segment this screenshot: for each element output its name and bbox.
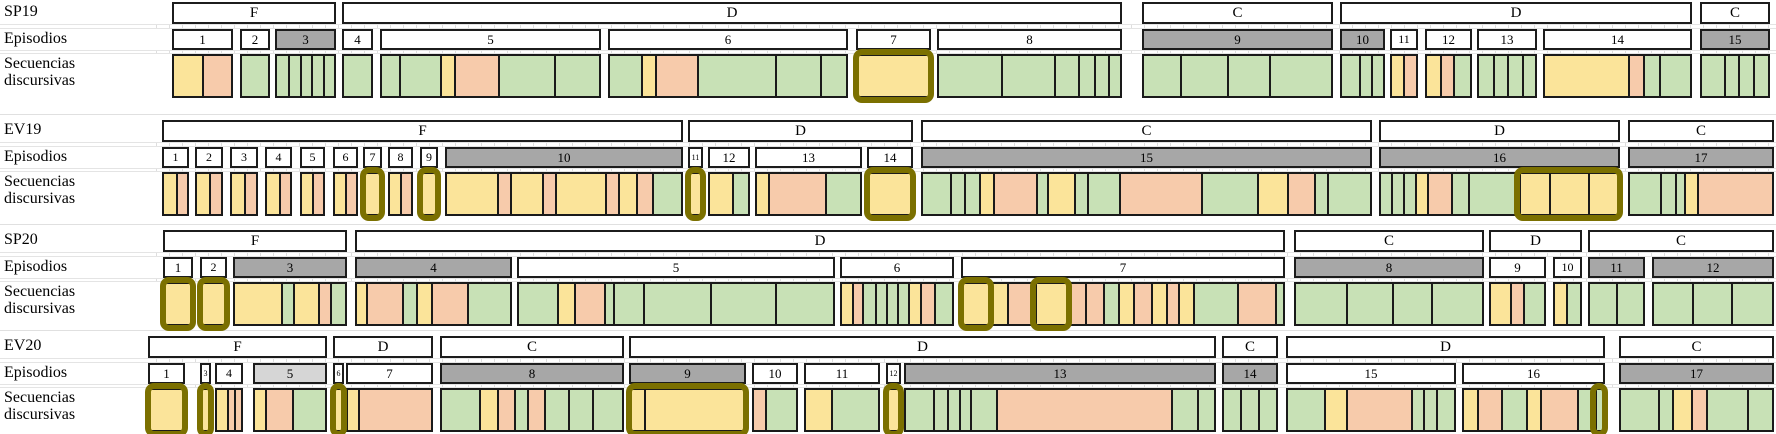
- episode-box-9: 9: [1489, 257, 1546, 278]
- sequence-cell-green: [1392, 284, 1432, 324]
- sequence-cell-yellow: [757, 174, 768, 214]
- sequence-cell-yellow: [335, 390, 342, 430]
- sequence-cell-green: [242, 56, 268, 96]
- sequence-cell-green: [568, 390, 592, 430]
- sequence-cell-green: [467, 284, 510, 324]
- sequence-cell-green: [1566, 284, 1580, 324]
- sequence-cell-green: [1094, 56, 1108, 96]
- sequence-cell-orange: [244, 174, 256, 214]
- sequence-cell-yellow: [842, 284, 852, 324]
- episode-box-1: 1: [162, 147, 189, 168]
- sequence-cell-green: [875, 284, 887, 324]
- sequence-strip-ep12: [886, 388, 901, 432]
- sequence-cell-yellow: [1672, 390, 1691, 430]
- highlighted-cell-group: [165, 284, 191, 324]
- episode-box-5: 5: [300, 147, 325, 168]
- sequence-strip-ep13: [1477, 54, 1537, 98]
- highlighted-cell-group: [202, 284, 225, 324]
- sequence-cell-green: [1193, 284, 1237, 324]
- episode-box-4: 4: [355, 257, 512, 278]
- sequence-cell-orange: [227, 390, 234, 430]
- sequence-cell-green: [1423, 390, 1436, 430]
- sequence-cell-green: [281, 284, 293, 324]
- sequence-cell-yellow: [1427, 56, 1440, 96]
- phase-box-d: D: [1340, 2, 1692, 24]
- sequence-strip-ep6: [333, 388, 344, 432]
- episode-box-6: 6: [333, 147, 358, 168]
- sequence-strip-ep2: [195, 172, 223, 216]
- episode-box-10: 10: [1340, 29, 1385, 50]
- sequence-strip-ep8: [388, 172, 413, 216]
- sequence-strip-ep1: [172, 54, 233, 98]
- sequence-cell-green: [950, 174, 963, 214]
- sequence-cell-green: [1036, 174, 1047, 214]
- episode-box-2: 2: [240, 29, 270, 50]
- sequence-cell-green: [1436, 390, 1454, 430]
- sequence-cell-green: [1296, 284, 1346, 324]
- episode-box-4: 4: [215, 363, 243, 384]
- episode-box-16: 16: [1379, 147, 1620, 168]
- sequence-cell-green: [1054, 56, 1078, 96]
- highlighted-cell-group: [963, 284, 989, 324]
- phase-box-c: C: [1700, 2, 1770, 24]
- highlighted-cell-group: [869, 174, 911, 214]
- sequence-cell-yellow: [858, 56, 929, 96]
- episode-box-3: 3: [275, 29, 336, 50]
- sequence-strip-ep6: [608, 54, 848, 98]
- sequence-cell-green: [519, 284, 557, 324]
- sequence-strip-ep2: [240, 54, 270, 98]
- block-sp20: SP20EpisodiosSecuencias discursivasFDCDC…: [0, 230, 1776, 326]
- sequence-cell-orange: [1237, 284, 1275, 324]
- phase-box-d: D: [355, 230, 1285, 252]
- sequence-cell-orange: [1119, 174, 1201, 214]
- episode-box-14: 14: [1222, 363, 1278, 384]
- sequence-cell-orange: [852, 284, 863, 324]
- sequence-cell-green: [1240, 390, 1258, 430]
- episode-box-15: 15: [1286, 363, 1456, 384]
- highlighted-cell-group: [1595, 390, 1603, 430]
- sequence-cell-yellow: [710, 174, 732, 214]
- sequence-cell-orange: [1540, 390, 1577, 430]
- sequence-cell-green: [1738, 56, 1753, 96]
- sequence-cell-orange: [497, 174, 510, 214]
- sequence-cell-yellow: [479, 390, 498, 430]
- sequence-cell-yellow: [267, 174, 279, 214]
- sequence-cell-orange: [1133, 284, 1151, 324]
- sequence-cell-orange: [234, 390, 241, 430]
- episode-box-17: 17: [1619, 363, 1774, 384]
- block-label: EV20: [4, 338, 41, 355]
- episode-box-8: 8: [1294, 257, 1484, 278]
- sequence-cell-green: [939, 56, 1001, 96]
- phase-box-f: F: [162, 120, 683, 142]
- sequence-strip-ep6: [840, 282, 954, 326]
- episode-box-10: 10: [1553, 257, 1582, 278]
- sequence-strip-ep15: [921, 172, 1372, 216]
- sequence-cell-green: [897, 284, 908, 324]
- sequence-cell-orange: [993, 174, 1036, 214]
- sequence-cell-green: [1269, 56, 1331, 96]
- sequence-strip-ep9: [1142, 54, 1333, 98]
- sequence-cell-yellow: [1257, 174, 1286, 214]
- sequence-cell-green: [610, 56, 641, 96]
- sequence-cell-green: [442, 390, 479, 430]
- phase-box-f: F: [172, 2, 336, 24]
- sequence-strip-ep17: [1628, 172, 1774, 216]
- sequence-cell-green: [277, 56, 288, 96]
- episode-box-9: 9: [420, 147, 438, 168]
- episode-box-11: 11: [1588, 257, 1645, 278]
- sequence-cell-green: [1275, 284, 1283, 324]
- sequence-cell-yellow: [555, 174, 605, 214]
- sequence-cell-orange: [279, 174, 290, 214]
- sequence-cell-green: [1577, 390, 1596, 430]
- sequence-cell-orange: [202, 56, 232, 96]
- sequence-cell-green: [1180, 56, 1227, 96]
- phase-box-c: C: [1588, 230, 1774, 252]
- sequence-cell-green: [1381, 174, 1391, 214]
- sequence-cell-green: [402, 284, 416, 324]
- phase-box-c: C: [1294, 230, 1484, 252]
- sequence-cell-yellow: [1491, 284, 1510, 324]
- sequence-cell-yellow: [510, 174, 542, 214]
- sequence-strip-ep3: [275, 54, 336, 98]
- block-ev19: EV19EpisodiosSecuencias discursivasFDCDC…: [0, 120, 1776, 216]
- sequence-cell-yellow: [1324, 390, 1346, 430]
- episode-box-7: 7: [961, 257, 1285, 278]
- sequence-cell-orange: [209, 174, 221, 214]
- episode-box-12: 12: [708, 147, 750, 168]
- sequence-strip-ep5: [517, 282, 835, 326]
- sequence-cell-green: [1258, 390, 1276, 430]
- sequence-cell-green: [1724, 56, 1739, 96]
- sequence-cell-orange: [1067, 284, 1085, 324]
- sequence-cell-orange: [1440, 56, 1453, 96]
- sequence-cell-yellow: [1519, 174, 1549, 214]
- phase-box-d: D: [688, 120, 913, 142]
- sequence-strip-ep1: [162, 172, 189, 216]
- sequence-cell-orange: [1007, 284, 1035, 324]
- episode-box-7: 7: [363, 147, 382, 168]
- sequence-strip-ep7: [961, 282, 1285, 326]
- sequence-cell-orange: [1691, 390, 1706, 430]
- sequence-strip-ep4: [355, 282, 512, 326]
- row-label-episodios: Episodios: [4, 31, 67, 48]
- episode-box-12: 12: [1425, 29, 1472, 50]
- discourse-sequences-chart: SP19EpisodiosSecuencias discursivasFDCDC…: [0, 0, 1776, 434]
- sequence-cell-green: [1371, 56, 1383, 96]
- sequence-cell-yellow: [1151, 284, 1166, 324]
- episode-box-7: 7: [346, 363, 433, 384]
- sequence-strip-ep11: [688, 172, 703, 216]
- sequence-strip-ep12: [708, 172, 750, 216]
- episode-box-13: 13: [904, 363, 1216, 384]
- phase-box-d: D: [629, 336, 1216, 358]
- sequence-cell-green: [934, 284, 952, 324]
- sequence-cell-yellow: [1526, 390, 1540, 430]
- sequence-cell-yellow: [1415, 174, 1427, 214]
- row-label-episodios: Episodios: [4, 365, 67, 382]
- sequence-strip-ep5: [253, 388, 327, 432]
- phase-box-d: D: [342, 2, 1122, 24]
- sequence-cell-green: [1108, 56, 1120, 96]
- sequence-cell-green: [344, 56, 371, 96]
- sequence-cell-yellow: [232, 174, 244, 214]
- sequence-cell-orange: [527, 390, 544, 430]
- phase-box-f: F: [163, 230, 347, 252]
- highlighted-cell-group: [690, 174, 701, 214]
- sequence-cell-green: [820, 56, 846, 96]
- block-label: EV19: [4, 122, 41, 139]
- sequence-cell-green: [498, 56, 554, 96]
- sequence-cell-green: [1479, 56, 1493, 96]
- episode-box-12: 12: [886, 363, 901, 384]
- episode-box-8: 8: [388, 147, 413, 168]
- row-gridline: [0, 224, 1776, 225]
- sequence-cell-yellow: [335, 174, 345, 214]
- sequence-cell-green: [970, 390, 996, 430]
- sequence-strip-ep11: [1390, 54, 1418, 98]
- highlighted-cell-group: [335, 390, 342, 430]
- sequence-cell-green: [964, 174, 980, 214]
- phase-box-c: C: [440, 336, 624, 358]
- sequence-cell-green: [1403, 174, 1415, 214]
- sequence-cell-orange: [358, 390, 431, 430]
- sequence-cell-yellow: [557, 284, 575, 324]
- sequence-cell-yellow: [869, 174, 911, 214]
- episode-box-5: 5: [380, 29, 601, 50]
- sequence-cell-yellow: [255, 390, 265, 430]
- sequence-cell-yellow: [989, 284, 1007, 324]
- sequence-cell-green: [1453, 56, 1470, 96]
- episode-box-10: 10: [445, 147, 683, 168]
- sequence-cell-yellow: [963, 284, 989, 324]
- phase-box-c: C: [1222, 336, 1278, 358]
- row-gridline: [0, 114, 1776, 115]
- block-label: SP20: [4, 232, 38, 249]
- sequence-strip-ep4: [215, 388, 243, 432]
- sequence-cell-green: [292, 390, 325, 430]
- episode-box-1: 1: [163, 257, 193, 278]
- sequence-cell-orange: [1166, 284, 1178, 324]
- sequence-cell-green: [399, 56, 440, 96]
- sequence-cell-green: [862, 284, 875, 324]
- episode-box-17: 17: [1628, 147, 1774, 168]
- episode-box-15: 15: [1700, 29, 1770, 50]
- sequence-cell-yellow: [690, 174, 701, 214]
- sequence-cell-green: [1451, 174, 1468, 214]
- sequence-cell-green: [1074, 174, 1087, 214]
- episode-box-8: 8: [937, 29, 1122, 50]
- sequence-cell-green: [643, 284, 711, 324]
- block-ev20: EV20EpisodiosSecuencias discursivasFDCDC…: [0, 336, 1776, 432]
- sequence-cell-green: [1327, 174, 1370, 214]
- sequence-strip-ep7: [363, 172, 382, 216]
- sequence-strip-ep11: [1588, 282, 1645, 326]
- highlighted-cell-group: [858, 56, 929, 96]
- sequence-cell-green: [544, 390, 568, 430]
- sequence-cell-green: [554, 56, 599, 96]
- sequence-cell-green: [1675, 174, 1684, 214]
- sequence-cell-green: [1643, 56, 1659, 96]
- episode-box-2: 2: [195, 147, 223, 168]
- phase-box-c: C: [1619, 336, 1774, 358]
- sequence-cell-orange: [497, 390, 514, 430]
- episode-box-12: 12: [1652, 257, 1774, 278]
- sequence-cell-green: [1660, 174, 1675, 214]
- sequence-cell-green: [1411, 390, 1424, 430]
- sequence-strip-ep14: [867, 172, 913, 216]
- row-label-episodios: Episodios: [4, 259, 67, 276]
- sequence-cell-yellow: [631, 390, 644, 430]
- sequence-cell-green: [1747, 390, 1772, 430]
- sequence-cell-yellow: [644, 390, 744, 430]
- episode-box-9: 9: [629, 363, 746, 384]
- sequence-cell-green: [1658, 390, 1673, 430]
- sequence-cell-green: [1001, 56, 1054, 96]
- sequence-cell-yellow: [641, 56, 655, 96]
- sequence-strip-ep12: [1425, 54, 1472, 98]
- sequence-cell-orange: [1697, 174, 1772, 214]
- highlighted-cell-group: [422, 174, 436, 214]
- episode-box-5: 5: [517, 257, 835, 278]
- sequence-cell-yellow: [806, 390, 831, 430]
- sequence-cell-green: [592, 390, 622, 430]
- episode-box-4: 4: [265, 147, 292, 168]
- episode-box-9: 9: [1142, 29, 1333, 50]
- sequence-cell-green: [311, 56, 322, 96]
- sequence-cell-green: [604, 284, 612, 324]
- sequence-cell-yellow: [1118, 284, 1133, 324]
- episode-box-10: 10: [752, 363, 798, 384]
- sequence-cell-orange: [176, 174, 187, 214]
- episode-box-7: 7: [856, 29, 931, 50]
- sequence-cell-orange: [1085, 284, 1103, 324]
- block-sp19: SP19EpisodiosSecuencias discursivasFDCDC…: [0, 2, 1776, 98]
- row-label-episodios: Episodios: [4, 149, 67, 166]
- sequence-strip-ep8: [1294, 282, 1484, 326]
- sequence-strip-ep10: [1553, 282, 1582, 326]
- sequence-cell-yellow: [390, 174, 400, 214]
- sequence-cell-green: [1706, 390, 1747, 430]
- sequence-cell-yellow: [197, 174, 209, 214]
- sequence-cell-orange: [454, 56, 497, 96]
- sequence-cell-yellow: [979, 174, 992, 214]
- sequence-cell-yellow: [1035, 284, 1067, 324]
- sequence-cell-green: [382, 56, 399, 96]
- phase-box-d: D: [333, 336, 433, 358]
- row-label-secuencias: Secuencias discursivas: [4, 284, 75, 318]
- sequence-cell-yellow: [908, 284, 921, 324]
- episode-box-1: 1: [172, 29, 233, 50]
- episode-box-1: 1: [148, 363, 185, 384]
- sequence-cell-green: [933, 390, 947, 430]
- sequence-cell-green: [330, 284, 345, 324]
- sequence-cell-yellow: [888, 390, 899, 430]
- sequence-cell-orange: [345, 174, 356, 214]
- sequence-cell-yellow: [202, 284, 225, 324]
- sequence-cell-orange: [1346, 390, 1410, 430]
- sequence-strip-ep15: [1700, 54, 1770, 98]
- sequence-cell-yellow: [1047, 174, 1074, 214]
- sequence-cell-green: [1621, 390, 1658, 430]
- sequence-cell-yellow: [217, 390, 227, 430]
- episode-box-6: 6: [333, 363, 344, 384]
- sequence-cell-orange: [996, 390, 1171, 430]
- sequence-cell-green: [1590, 284, 1616, 324]
- sequence-cell-green: [652, 174, 681, 214]
- sequence-cell-green: [323, 56, 334, 96]
- sequence-cell-green: [1630, 174, 1660, 214]
- sequence-cell-yellow: [440, 56, 454, 96]
- sequence-cell-green: [775, 284, 833, 324]
- highlighted-cell-group: [150, 390, 183, 430]
- sequence-cell-orange: [1477, 390, 1501, 430]
- sequence-strip-ep15: [1286, 388, 1456, 432]
- sequence-cell-orange: [768, 174, 825, 214]
- sequence-cell-green: [1346, 284, 1391, 324]
- sequence-cell-green: [1523, 284, 1544, 324]
- sequence-cell-yellow: [1392, 56, 1403, 96]
- sequence-cell-orange: [431, 284, 466, 324]
- sequence-cell-green: [923, 174, 950, 214]
- sequence-cell-green: [1507, 56, 1522, 96]
- sequence-strip-ep10: [1340, 54, 1385, 98]
- sequence-cell-green: [886, 284, 897, 324]
- sequence-cell-yellow: [1588, 174, 1618, 214]
- sequence-cell-orange: [318, 284, 330, 324]
- sequence-cell-orange: [605, 174, 618, 214]
- episode-box-11: 11: [804, 363, 880, 384]
- sequence-strip-ep5: [300, 172, 325, 216]
- sequence-cell-yellow: [422, 174, 436, 214]
- episode-box-6: 6: [608, 29, 848, 50]
- sequence-cell-orange: [574, 284, 604, 324]
- sequence-strip-ep8: [937, 54, 1122, 98]
- sequence-cell-green: [1171, 390, 1197, 430]
- sequence-cell-orange: [1628, 56, 1643, 96]
- sequence-cell-green: [1731, 284, 1772, 324]
- sequence-strip-ep9: [420, 172, 438, 216]
- sequence-cell-green: [1314, 174, 1327, 214]
- episode-box-8: 8: [440, 363, 624, 384]
- sequence-cell-green: [1468, 174, 1519, 214]
- episode-box-16: 16: [1462, 363, 1605, 384]
- sequence-cell-orange: [1427, 174, 1451, 214]
- sequence-cell-green: [1702, 56, 1724, 96]
- sequence-cell-yellow: [357, 284, 366, 324]
- sequence-cell-green: [825, 174, 860, 214]
- sequence-cell-orange: [312, 174, 323, 214]
- sequence-strip-ep13: [755, 172, 862, 216]
- sequence-cell-green: [288, 56, 300, 96]
- block-label: SP19: [4, 4, 38, 21]
- sequence-cell-orange: [400, 174, 411, 214]
- sequence-cell-orange: [265, 390, 292, 430]
- sequence-strip-ep10: [445, 172, 683, 216]
- phase-box-c: C: [921, 120, 1372, 142]
- sequence-cell-yellow: [1684, 174, 1697, 214]
- sequence-strip-ep5: [380, 54, 601, 98]
- sequence-cell-green: [1659, 56, 1690, 96]
- sequence-strip-ep14: [1222, 388, 1278, 432]
- sequence-cell-green: [1654, 284, 1692, 324]
- sequence-strip-ep11: [804, 388, 880, 432]
- phase-box-f: F: [148, 336, 327, 358]
- episode-box-13: 13: [755, 147, 862, 168]
- sequence-strip-ep7: [856, 54, 931, 98]
